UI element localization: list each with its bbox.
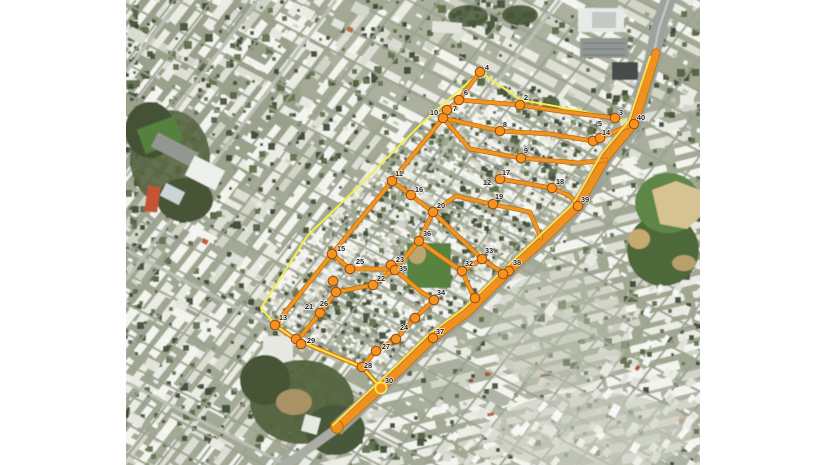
- svg-text:38: 38: [513, 258, 521, 267]
- svg-text:10: 10: [430, 108, 438, 117]
- svg-text:9: 9: [524, 146, 528, 155]
- svg-text:3: 3: [619, 108, 623, 117]
- svg-text:7: 7: [453, 104, 457, 113]
- svg-text:26: 26: [320, 299, 328, 308]
- svg-text:8: 8: [503, 120, 507, 129]
- svg-text:25: 25: [356, 257, 364, 266]
- svg-text:16: 16: [415, 185, 423, 194]
- svg-text:39: 39: [581, 195, 589, 204]
- svg-text:13: 13: [279, 313, 287, 322]
- svg-text:28: 28: [364, 361, 372, 370]
- svg-text:40: 40: [637, 113, 645, 122]
- svg-text:11: 11: [395, 169, 403, 178]
- svg-text:27: 27: [382, 342, 390, 351]
- svg-text:12: 12: [483, 178, 491, 187]
- svg-text:32: 32: [465, 259, 473, 268]
- svg-text:5: 5: [598, 119, 602, 128]
- svg-text:14: 14: [602, 128, 611, 137]
- svg-text:18: 18: [556, 177, 564, 186]
- svg-text:36: 36: [423, 229, 431, 238]
- svg-text:20: 20: [437, 201, 445, 210]
- svg-text:23: 23: [396, 255, 404, 264]
- svg-text:34: 34: [437, 288, 446, 297]
- svg-text:6: 6: [464, 88, 468, 97]
- svg-text:33: 33: [485, 246, 493, 255]
- svg-text:29: 29: [307, 336, 315, 345]
- svg-text:35: 35: [399, 264, 407, 273]
- svg-text:24: 24: [400, 323, 409, 332]
- svg-text:21: 21: [305, 302, 313, 311]
- svg-text:19: 19: [495, 192, 503, 201]
- svg-text:22: 22: [377, 274, 385, 283]
- svg-text:37: 37: [436, 327, 444, 336]
- svg-text:17: 17: [502, 168, 510, 177]
- svg-text:15: 15: [337, 244, 345, 253]
- svg-text:2: 2: [524, 93, 528, 102]
- svg-text:30: 30: [385, 376, 393, 385]
